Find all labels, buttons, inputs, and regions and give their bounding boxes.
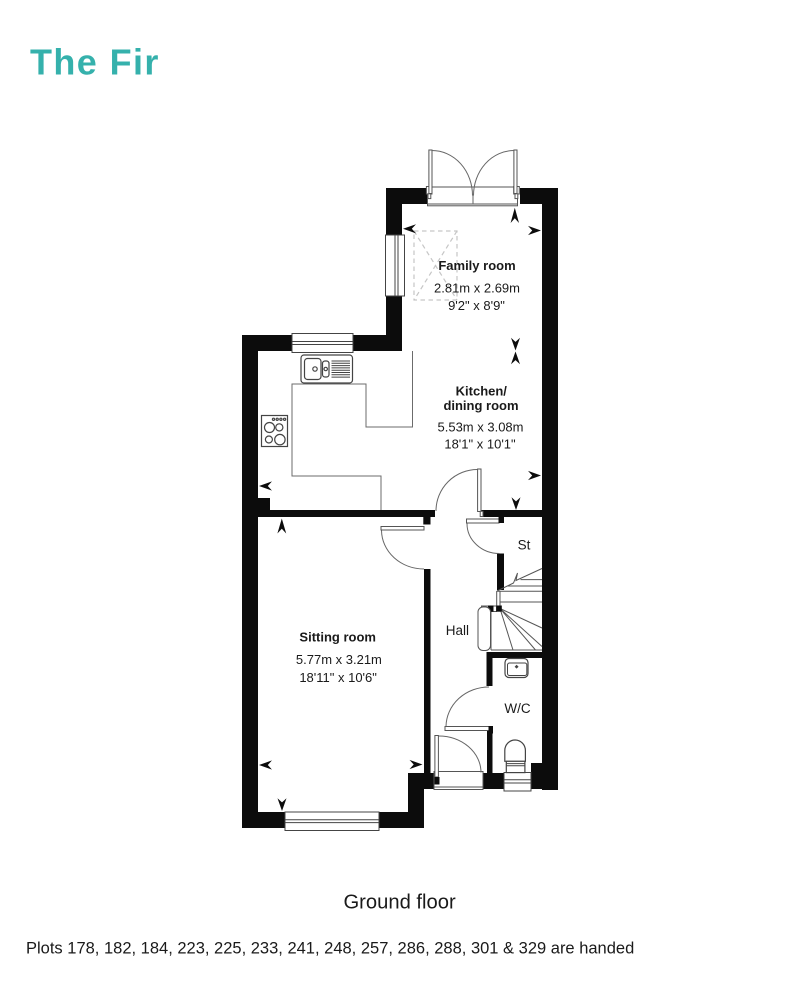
svg-text:18'1" x 10'1": 18'1" x 10'1"	[444, 436, 516, 451]
svg-text:Plots 178, 182, 184, 223, 225,: Plots 178, 182, 184, 223, 225, 233, 241,…	[26, 940, 634, 958]
svg-text:2.81m x 2.69m: 2.81m x 2.69m	[434, 281, 520, 296]
svg-text:Kitchen/: Kitchen/	[456, 383, 508, 398]
svg-text:Family room: Family room	[438, 258, 515, 273]
svg-text:Hall: Hall	[446, 623, 469, 638]
svg-text:dining room: dining room	[443, 398, 518, 413]
svg-text:5.77m x 3.21m: 5.77m x 3.21m	[296, 652, 382, 667]
svg-text:18'11" x 10'6": 18'11" x 10'6"	[299, 670, 377, 685]
svg-text:W/C: W/C	[504, 701, 530, 716]
svg-text:Ground floor: Ground floor	[343, 892, 455, 914]
svg-text:St: St	[518, 538, 531, 553]
svg-text:9'2" x 8'9": 9'2" x 8'9"	[448, 298, 505, 313]
svg-text:Sitting room: Sitting room	[299, 630, 376, 645]
svg-text:5.53m x 3.08m: 5.53m x 3.08m	[438, 419, 524, 434]
svg-text:The Fir: The Fir	[30, 42, 160, 83]
